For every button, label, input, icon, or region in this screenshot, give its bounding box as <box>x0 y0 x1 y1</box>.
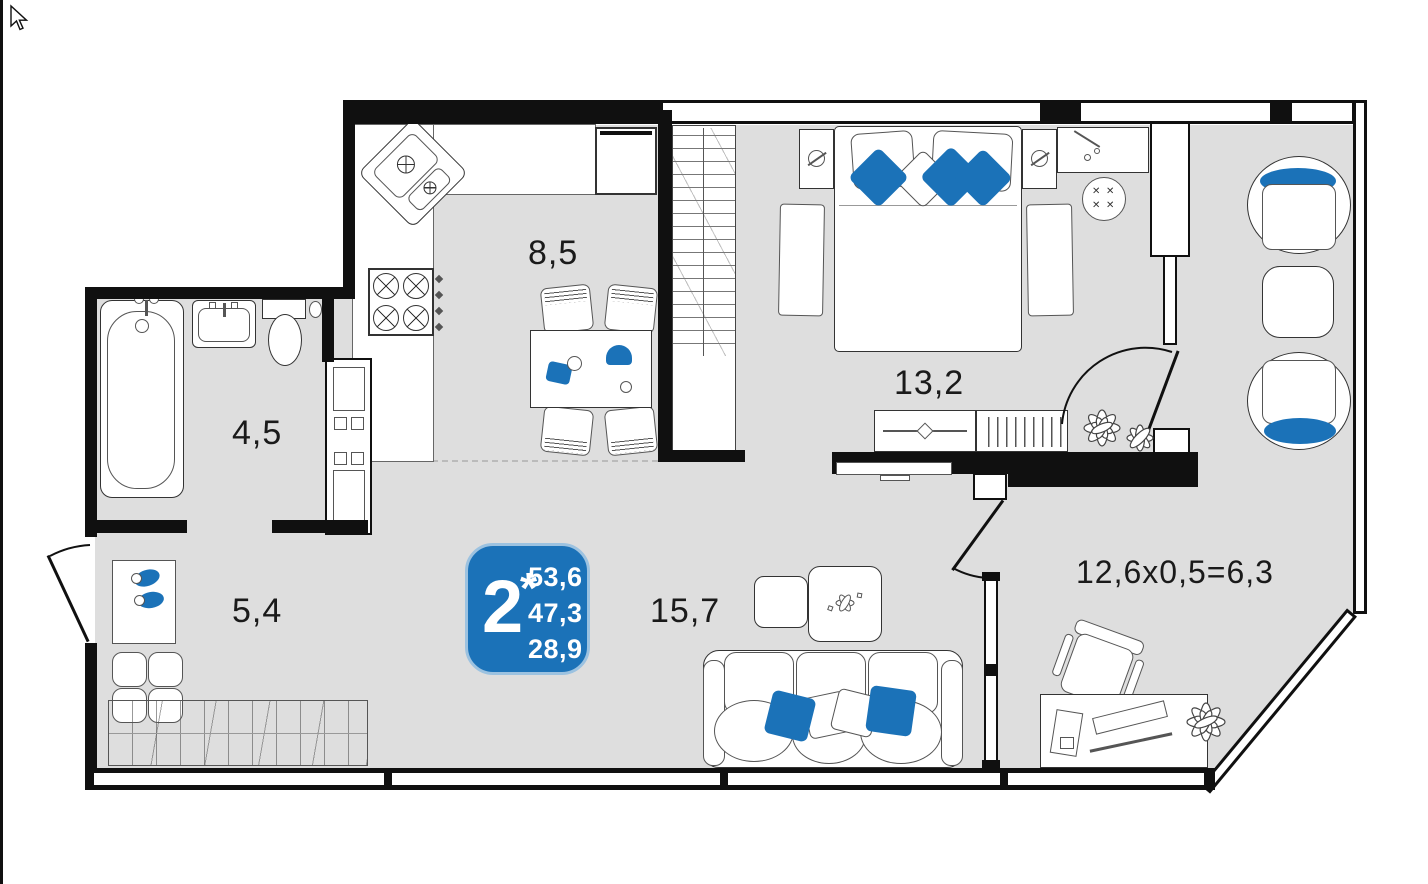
armchair-seat <box>1262 184 1336 250</box>
window-bottom <box>92 771 386 787</box>
armchair-seat <box>1262 360 1336 424</box>
badge-total-area: 53,6 <box>528 562 583 593</box>
dining-chair <box>604 406 659 457</box>
room-label-living: 15,7 <box>650 592 720 631</box>
dining-chair <box>540 284 595 335</box>
wall-bedroom-foot <box>658 450 745 462</box>
desk <box>1040 694 1208 768</box>
balcony-door-hinge-block <box>1153 428 1190 454</box>
mouse-cursor-icon <box>8 4 34 34</box>
pouf <box>112 652 147 687</box>
kitchen-counter-top <box>433 124 596 195</box>
stool-stitch-icon: ✕ <box>1092 187 1100 197</box>
stool-stitch-icon: ✕ <box>1106 201 1114 211</box>
armchair-cushion <box>1264 418 1336 444</box>
window-bottom <box>726 771 1002 787</box>
window-mullion <box>984 664 998 676</box>
window-balcony-top <box>1289 100 1355 124</box>
floor-plan-canvas: ✕ ✕ ✕ ✕ <box>0 0 1428 884</box>
bedroom-closet <box>672 125 736 452</box>
closet-divider <box>703 128 704 356</box>
window-bedroom-balcony <box>1163 255 1177 345</box>
balcony-glazing-right <box>1353 100 1367 614</box>
washer-glyph <box>351 452 364 465</box>
room-label-bathroom: 4,5 <box>232 414 282 453</box>
window-bottom <box>1006 771 1206 787</box>
table-setting-napkin <box>606 345 632 365</box>
wall-bedroom-living-extra <box>1008 474 1198 487</box>
wall-bathroom-top <box>85 287 350 299</box>
wall-pipe <box>309 301 322 318</box>
hall-wardrobe <box>108 700 368 766</box>
toilet-bowl <box>268 314 302 366</box>
slipper-heel <box>134 595 145 606</box>
fridge <box>595 127 657 195</box>
wardrobe-rail-line <box>109 733 367 734</box>
badge-living-area: 47,3 <box>528 598 583 629</box>
chair-back-rails <box>544 437 587 454</box>
desk-keyboard-line <box>1090 732 1173 752</box>
room-label-bedroom: 13,2 <box>894 364 964 403</box>
utility-shaft <box>325 358 372 535</box>
desk-paper-note <box>1060 737 1074 749</box>
wall-kitchen-bedroom <box>658 110 672 462</box>
vanity-item <box>1084 154 1091 161</box>
bedside-rug <box>1026 204 1074 317</box>
washer-box-top <box>333 367 365 411</box>
wall-bedroom-balcony <box>1150 122 1190 257</box>
closet-shelves <box>673 128 735 356</box>
wall-pier <box>1043 100 1078 124</box>
bathtub <box>100 300 184 498</box>
wall-left-lower <box>85 643 97 770</box>
books <box>983 417 1063 447</box>
chair-back-rails <box>544 288 587 305</box>
sofa-armrest <box>941 660 963 766</box>
coffee-table-large <box>808 566 882 642</box>
dining-chair <box>604 284 659 335</box>
badge-third-area: 28,9 <box>528 634 583 665</box>
tv <box>836 462 952 475</box>
stove-burner-icon <box>403 273 429 299</box>
coffee-table-small <box>754 576 808 628</box>
table-setting-plate <box>620 381 632 393</box>
wall-kitchen-left <box>343 100 355 299</box>
vanity-desk <box>1057 127 1149 173</box>
dining-chair <box>540 406 595 457</box>
wall-pier <box>1273 100 1289 124</box>
wall-bathroom-right <box>322 297 334 362</box>
entrance-door-leaf <box>47 555 90 642</box>
nightstand <box>1022 129 1057 189</box>
wall-top-kitchen <box>343 100 660 124</box>
fridge-door-line <box>600 131 652 135</box>
room-label-hallway: 5,4 <box>232 592 282 631</box>
stool-stitch-icon: ✕ <box>1092 201 1100 211</box>
balcony-table <box>1262 266 1334 338</box>
screen-left-edge <box>0 0 3 884</box>
blanket-fold-line <box>839 205 1017 206</box>
tv-stand <box>880 475 910 481</box>
window-bedroom-top <box>660 100 1043 124</box>
desk-monitor <box>1092 700 1168 734</box>
pencil-icon <box>1074 130 1101 148</box>
apartment-info-badge: 2 * 53,6 47,3 28,9 <box>465 543 590 675</box>
vanity-item <box>1094 148 1100 154</box>
window-top-right <box>1078 100 1273 124</box>
bedroom-dresser <box>874 410 976 452</box>
bathtub-drain <box>135 319 149 333</box>
bathroom-sink <box>192 300 256 348</box>
wall-bathroom-bottom-b <box>272 520 368 533</box>
bookshelf <box>976 410 1068 452</box>
stool-stitch-icon: ✕ <box>1106 187 1114 197</box>
dresser-knob <box>917 423 934 440</box>
pouf <box>148 652 183 687</box>
wall-left-upper <box>85 287 97 537</box>
room-label-kitchen: 8,5 <box>528 234 578 273</box>
balcony-door-jamb <box>973 473 1007 500</box>
stove-burner-icon <box>403 305 429 331</box>
stove-burner-icon <box>373 273 399 299</box>
chair-back-rails <box>611 437 654 454</box>
sink-tap-handle <box>231 302 238 309</box>
desk-papers <box>1050 709 1084 757</box>
window-mullion <box>982 760 1000 769</box>
nightstand <box>799 129 834 189</box>
washer-glyph <box>334 417 347 430</box>
stove-burner-icon <box>373 305 399 331</box>
washer-box-bottom <box>333 470 365 526</box>
window-bottom <box>390 771 722 787</box>
window-mullion <box>982 572 1000 581</box>
chair-back-rails <box>611 288 654 305</box>
washer-glyph <box>351 417 364 430</box>
badge-room-count: 2 <box>482 570 523 644</box>
entrance-door-arc <box>50 545 90 556</box>
bedside-rug <box>778 204 825 317</box>
room-label-balcony: 12,6x0,5=6,3 <box>1076 554 1274 591</box>
vanity-stool <box>1082 177 1126 221</box>
sink-tap <box>223 303 226 317</box>
slipper-heel <box>131 573 142 584</box>
accent-pillow <box>865 685 917 737</box>
table-setting-plate <box>567 356 582 371</box>
wall-bathroom-bottom-a <box>95 520 187 533</box>
sink-tap-handle <box>209 302 216 309</box>
bathtub-inner <box>107 311 175 489</box>
bath-spout <box>145 300 148 316</box>
washer-glyph <box>334 452 347 465</box>
